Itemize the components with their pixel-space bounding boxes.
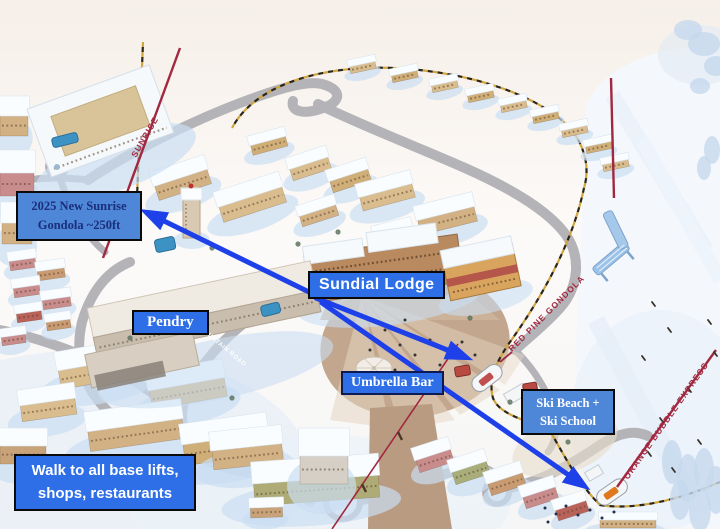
label-sunrise-gondola: 2025 New Sunrise Gondola ~250ft [16, 191, 142, 241]
label-pendry: Pendry [132, 310, 209, 335]
building [0, 96, 33, 158]
map-illustration: SUNRISE RED PINE GONDOLA ORANGE BUBBLE E… [0, 0, 720, 529]
label-umbrella-bar: Umbrella Bar [341, 371, 444, 395]
label-walk-note: Walk to all base lifts, shops, restauran… [14, 454, 196, 511]
label-sundial-lodge: Sundial Lodge [308, 271, 445, 299]
resort-map: SUNRISE RED PINE GONDOLA ORANGE BUBBLE E… [0, 0, 720, 529]
label-ski-beach: Ski Beach + Ski School [521, 389, 615, 435]
